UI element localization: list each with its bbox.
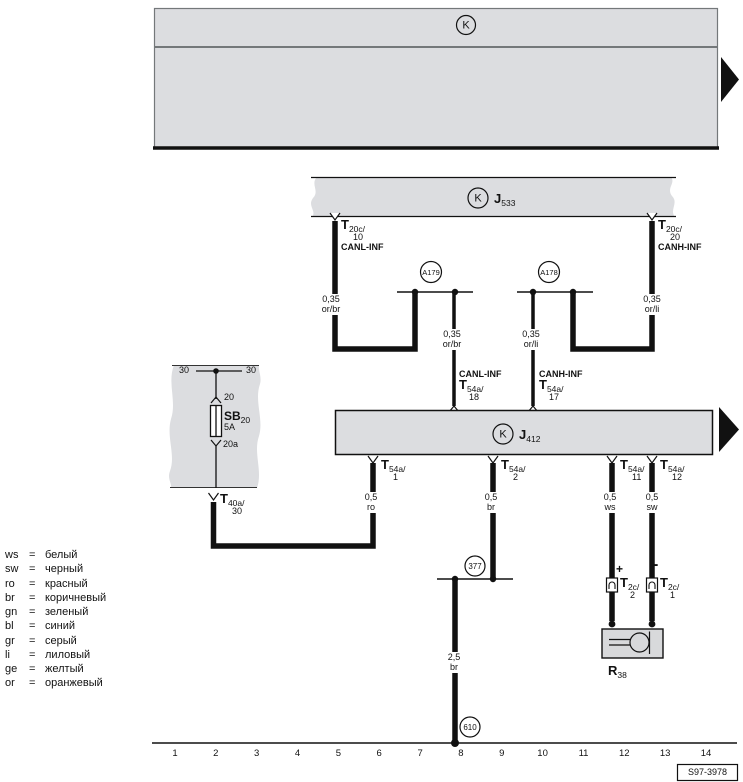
polarity-plus: + — [616, 563, 623, 575]
junction-dot — [570, 289, 576, 295]
diagram-id: S97-3978 — [679, 767, 736, 777]
terminal-label-t2c-2: T2c/ 2 — [620, 577, 639, 600]
junction-label-377: 377 — [468, 563, 481, 571]
wire-color-legend: ws=белый sw=черный ro=красный br=коричне… — [5, 548, 106, 691]
continuation-arrow-top — [721, 57, 739, 102]
j412-label: J412 — [519, 426, 540, 444]
track-number: 6 — [371, 748, 387, 759]
terminal-arrow — [647, 456, 657, 463]
fuse-pin-in-label: 20 — [224, 392, 234, 402]
wire-canh-stub — [573, 221, 652, 349]
control-unit-k-symbol: K — [474, 194, 481, 205]
terminal-arrow — [488, 456, 498, 463]
terminal-label-t40a-30: T40a/ 30 — [220, 493, 245, 516]
track-number: 11 — [576, 748, 592, 759]
wire-label-ws: 0,5ws — [602, 492, 619, 513]
terminal-label-t2c-1: T2c/ 1 — [660, 577, 679, 600]
legend-row: or=оранжевый — [5, 676, 106, 690]
fuse-rating-label: 5A — [224, 422, 235, 432]
control-unit-k-symbol: K — [462, 21, 469, 32]
track-number: 14 — [698, 748, 714, 759]
terminal-label-t20c-20: T20c/ 20 CANH-INF — [658, 219, 702, 252]
legend-row: ro=красный — [5, 577, 106, 591]
polarity-minus: - — [653, 559, 658, 571]
track-number: 8 — [453, 748, 469, 759]
terminal-30-label-right: 30 — [246, 365, 256, 375]
continuation-arrow-j412 — [719, 407, 739, 452]
legend-row: ws=белый — [5, 548, 106, 562]
legend-row: ge=желтый — [5, 662, 106, 676]
junction-label-a178: A178 — [540, 269, 558, 277]
terminal-30-label-left: 30 — [179, 365, 189, 375]
junction-dot — [649, 621, 656, 628]
junction-dot — [412, 289, 418, 295]
inline-connector-icon — [647, 578, 658, 592]
wire-label-canh-stub: 0,35or/li — [641, 294, 663, 315]
terminal-arrow — [368, 456, 378, 463]
terminal-label-t54a-12: T54a/ 12 — [660, 459, 685, 482]
wire-label-canl-stub: 0,35or/br — [320, 294, 343, 315]
terminal-label-t20c-10: T20c/ 10 CANL-INF — [341, 219, 384, 252]
inline-connector-icon — [607, 578, 618, 592]
track-number: 4 — [290, 748, 306, 759]
r38-label: R38 — [608, 662, 627, 680]
legend-row: bl=синий — [5, 619, 106, 633]
j533-label: J533 — [494, 190, 515, 208]
track-number: 3 — [249, 748, 265, 759]
j533-field — [311, 177, 675, 217]
legend-row: gn=зеленый — [5, 605, 106, 619]
terminal-label-t54a-1: T54a/ 1 — [381, 459, 406, 482]
terminal-arrow — [209, 493, 219, 500]
track-number: 10 — [535, 748, 551, 759]
junction-dot — [490, 576, 496, 582]
track-number: 1 — [167, 748, 183, 759]
track-number: 13 — [657, 748, 673, 759]
wire-label-br: 0,5br — [483, 492, 500, 513]
track-number: 2 — [208, 748, 224, 759]
wire-label-canl-drop: 0,35or/br — [441, 329, 464, 350]
fuse-pin-out-label: 20a — [223, 439, 238, 449]
track-number: 9 — [494, 748, 510, 759]
wire-label-canh-drop: 0,35or/li — [520, 329, 542, 350]
terminal-label-t54a-2: T54a/ 2 — [501, 459, 526, 482]
terminal-arrow — [607, 456, 617, 463]
wire-label-sw: 0,5sw — [644, 492, 661, 513]
terminal-label-t54a-11: T54a/ 11 — [620, 459, 645, 482]
r38-box — [602, 629, 663, 658]
legend-row: li=лиловый — [5, 648, 106, 662]
track-number: 7 — [412, 748, 428, 759]
junction-dot — [609, 621, 616, 628]
wiring-diagram-page: K K K J533 J412 R38 T20c/ 10 CANL-INF T2… — [0, 0, 743, 782]
ground-label-610: 610 — [463, 724, 476, 732]
diagram-canvas — [0, 0, 743, 782]
track-number: 12 — [616, 748, 632, 759]
legend-row: br=коричневый — [5, 591, 106, 605]
wire-label-ground: 2,5br — [446, 652, 463, 673]
legend-row: sw=черный — [5, 562, 106, 576]
legend-row: gr=серый — [5, 634, 106, 648]
top-control-unit-box — [155, 9, 718, 148]
terminal-label-t54a-17: CANH-INF T54a/ 17 — [539, 369, 583, 402]
control-unit-k-symbol: K — [499, 430, 506, 441]
junction-label-a179: A179 — [422, 269, 440, 277]
terminal-label-t54a-18: CANL-INF T54a/ 18 — [459, 369, 502, 402]
track-number: 5 — [330, 748, 346, 759]
wire-label-ro: 0,5ro — [363, 492, 380, 513]
